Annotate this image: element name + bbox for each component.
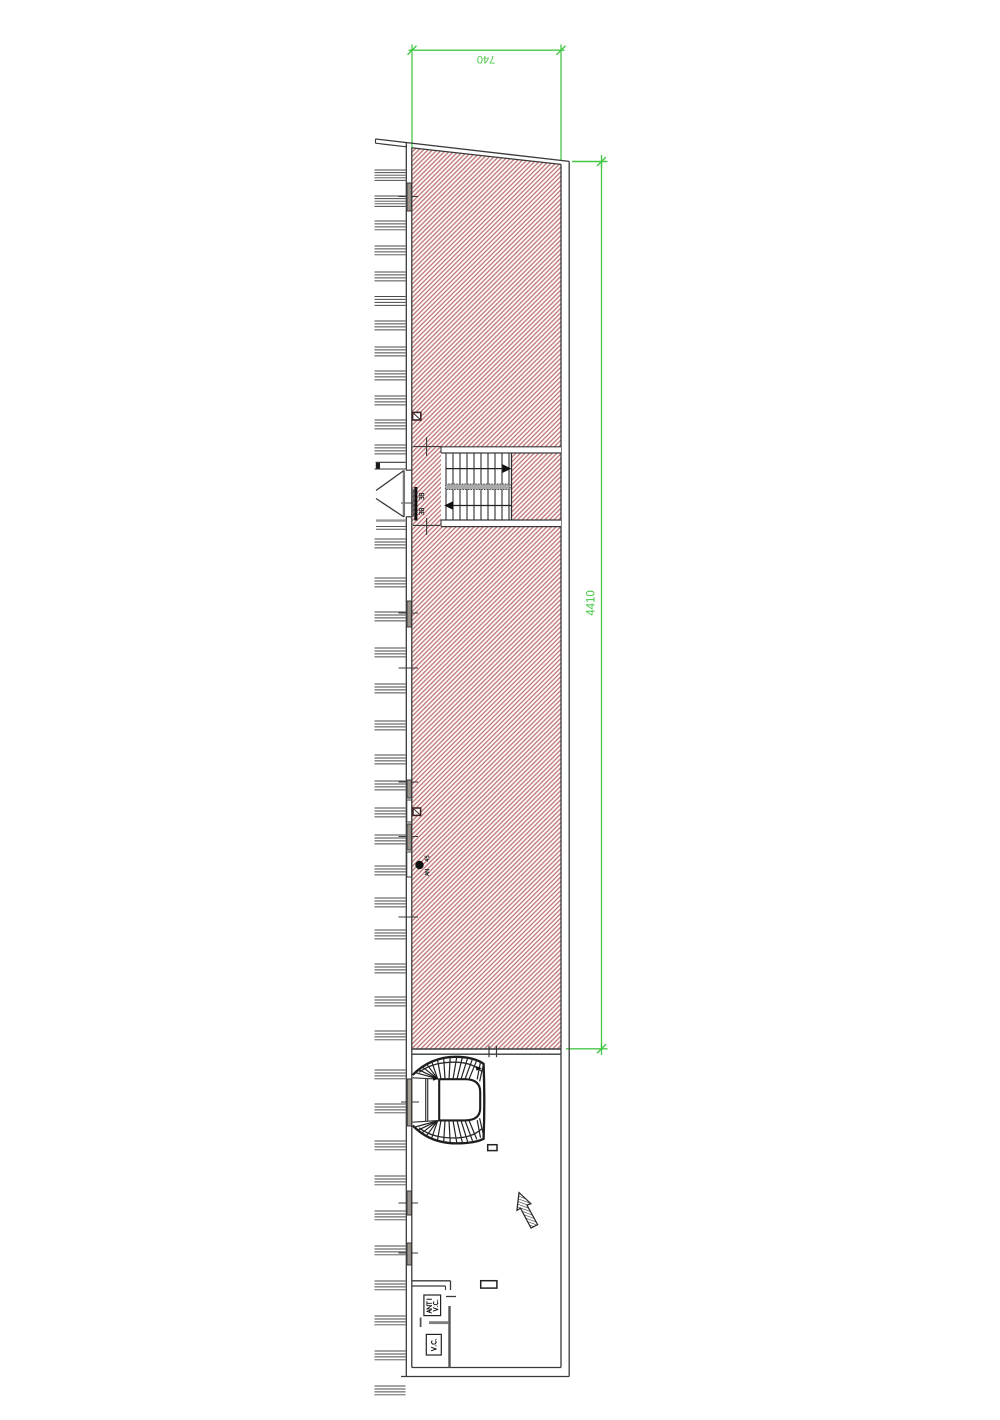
svg-text:740: 740 xyxy=(477,53,495,65)
svg-text:4410: 4410 xyxy=(586,590,598,616)
